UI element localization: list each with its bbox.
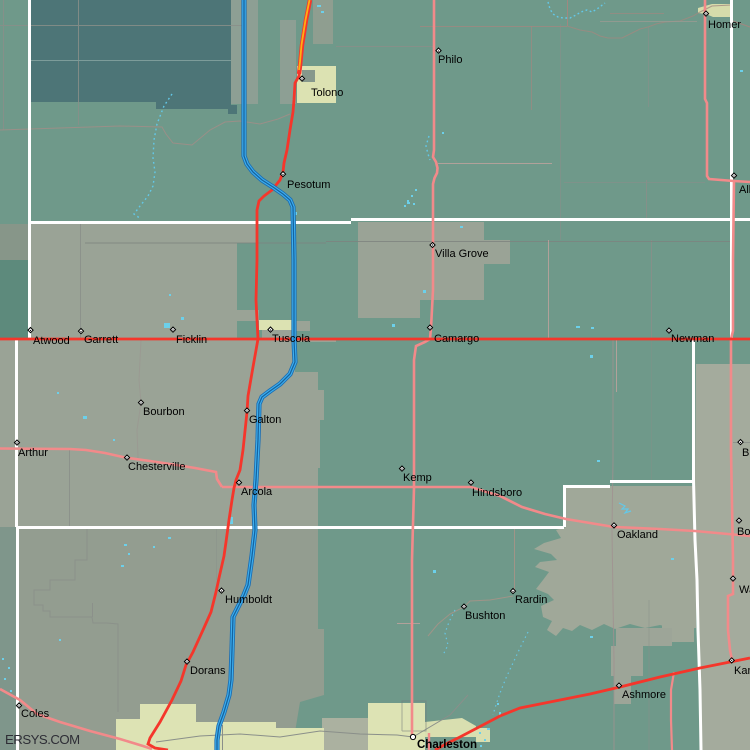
- svg-text:Charleston: Charleston: [417, 739, 477, 750]
- svg-text:Ficklin: Ficklin: [176, 334, 207, 346]
- svg-text:Humboldt: Humboldt: [225, 594, 272, 606]
- svg-text:Tuscola: Tuscola: [272, 333, 311, 345]
- svg-text:Camargo: Camargo: [434, 333, 479, 345]
- svg-text:Kan: Kan: [734, 665, 750, 677]
- svg-text:Dorans: Dorans: [190, 665, 226, 677]
- svg-text:Bushton: Bushton: [465, 610, 505, 622]
- svg-text:Ashmore: Ashmore: [622, 689, 666, 701]
- svg-text:Arthur: Arthur: [18, 447, 48, 459]
- svg-text:Galton: Galton: [249, 414, 281, 426]
- svg-text:Bo: Bo: [737, 526, 750, 538]
- svg-text:Wa: Wa: [739, 584, 750, 596]
- svg-text:Newman: Newman: [671, 333, 714, 345]
- svg-text:Coles: Coles: [21, 708, 50, 720]
- svg-text:Kemp: Kemp: [403, 472, 432, 484]
- svg-text:Arcola: Arcola: [241, 486, 273, 498]
- svg-text:Atwood: Atwood: [33, 335, 70, 347]
- svg-text:Rardin: Rardin: [515, 594, 547, 606]
- svg-text:Homer: Homer: [708, 19, 741, 31]
- svg-text:B: B: [742, 447, 749, 459]
- svg-text:Bourbon: Bourbon: [143, 406, 185, 418]
- svg-text:Villa Grove: Villa Grove: [435, 248, 489, 260]
- svg-text:Garrett: Garrett: [84, 334, 118, 346]
- svg-text:ERSYS.COM: ERSYS.COM: [5, 732, 80, 747]
- svg-text:Tolono: Tolono: [311, 87, 343, 99]
- svg-text:Hindsboro: Hindsboro: [472, 487, 522, 499]
- svg-text:Oakland: Oakland: [617, 529, 658, 541]
- svg-text:Pesotum: Pesotum: [287, 179, 330, 191]
- svg-text:Philo: Philo: [438, 54, 462, 66]
- svg-text:All: All: [739, 184, 750, 196]
- svg-text:Chesterville: Chesterville: [128, 461, 185, 473]
